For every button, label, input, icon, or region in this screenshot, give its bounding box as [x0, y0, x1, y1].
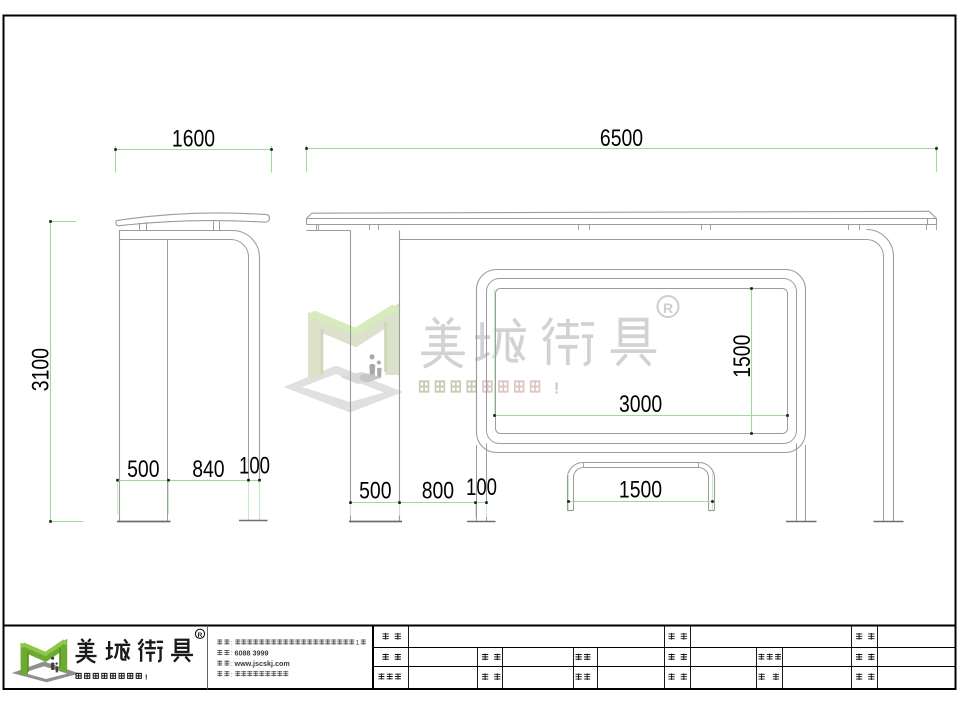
svg-text:R: R [198, 632, 203, 639]
svg-text:6500: 6500 [600, 125, 643, 152]
svg-text:840: 840 [192, 456, 224, 483]
svg-text:R: R [663, 300, 673, 316]
svg-text::: : [231, 671, 233, 678]
svg-text::: : [231, 650, 233, 657]
svg-text:100: 100 [466, 474, 497, 501]
svg-text:800: 800 [422, 477, 454, 504]
svg-text::: : [231, 640, 233, 647]
svg-text:3100: 3100 [27, 348, 54, 391]
svg-text:!: ! [554, 381, 559, 398]
svg-text::: : [231, 661, 233, 668]
svg-text:500: 500 [127, 456, 159, 483]
svg-text:1500: 1500 [729, 335, 756, 378]
svg-text:3000: 3000 [619, 391, 662, 418]
svg-text:500: 500 [359, 477, 391, 504]
svg-text:1: 1 [356, 640, 360, 647]
svg-text:100: 100 [239, 453, 270, 480]
svg-text:1500: 1500 [619, 477, 662, 504]
svg-text:!: ! [145, 672, 148, 681]
svg-text:1600: 1600 [172, 125, 215, 152]
svg-text:www.jscskj.com: www.jscskj.com [234, 659, 290, 668]
svg-text:6088 3999: 6088 3999 [235, 648, 269, 657]
